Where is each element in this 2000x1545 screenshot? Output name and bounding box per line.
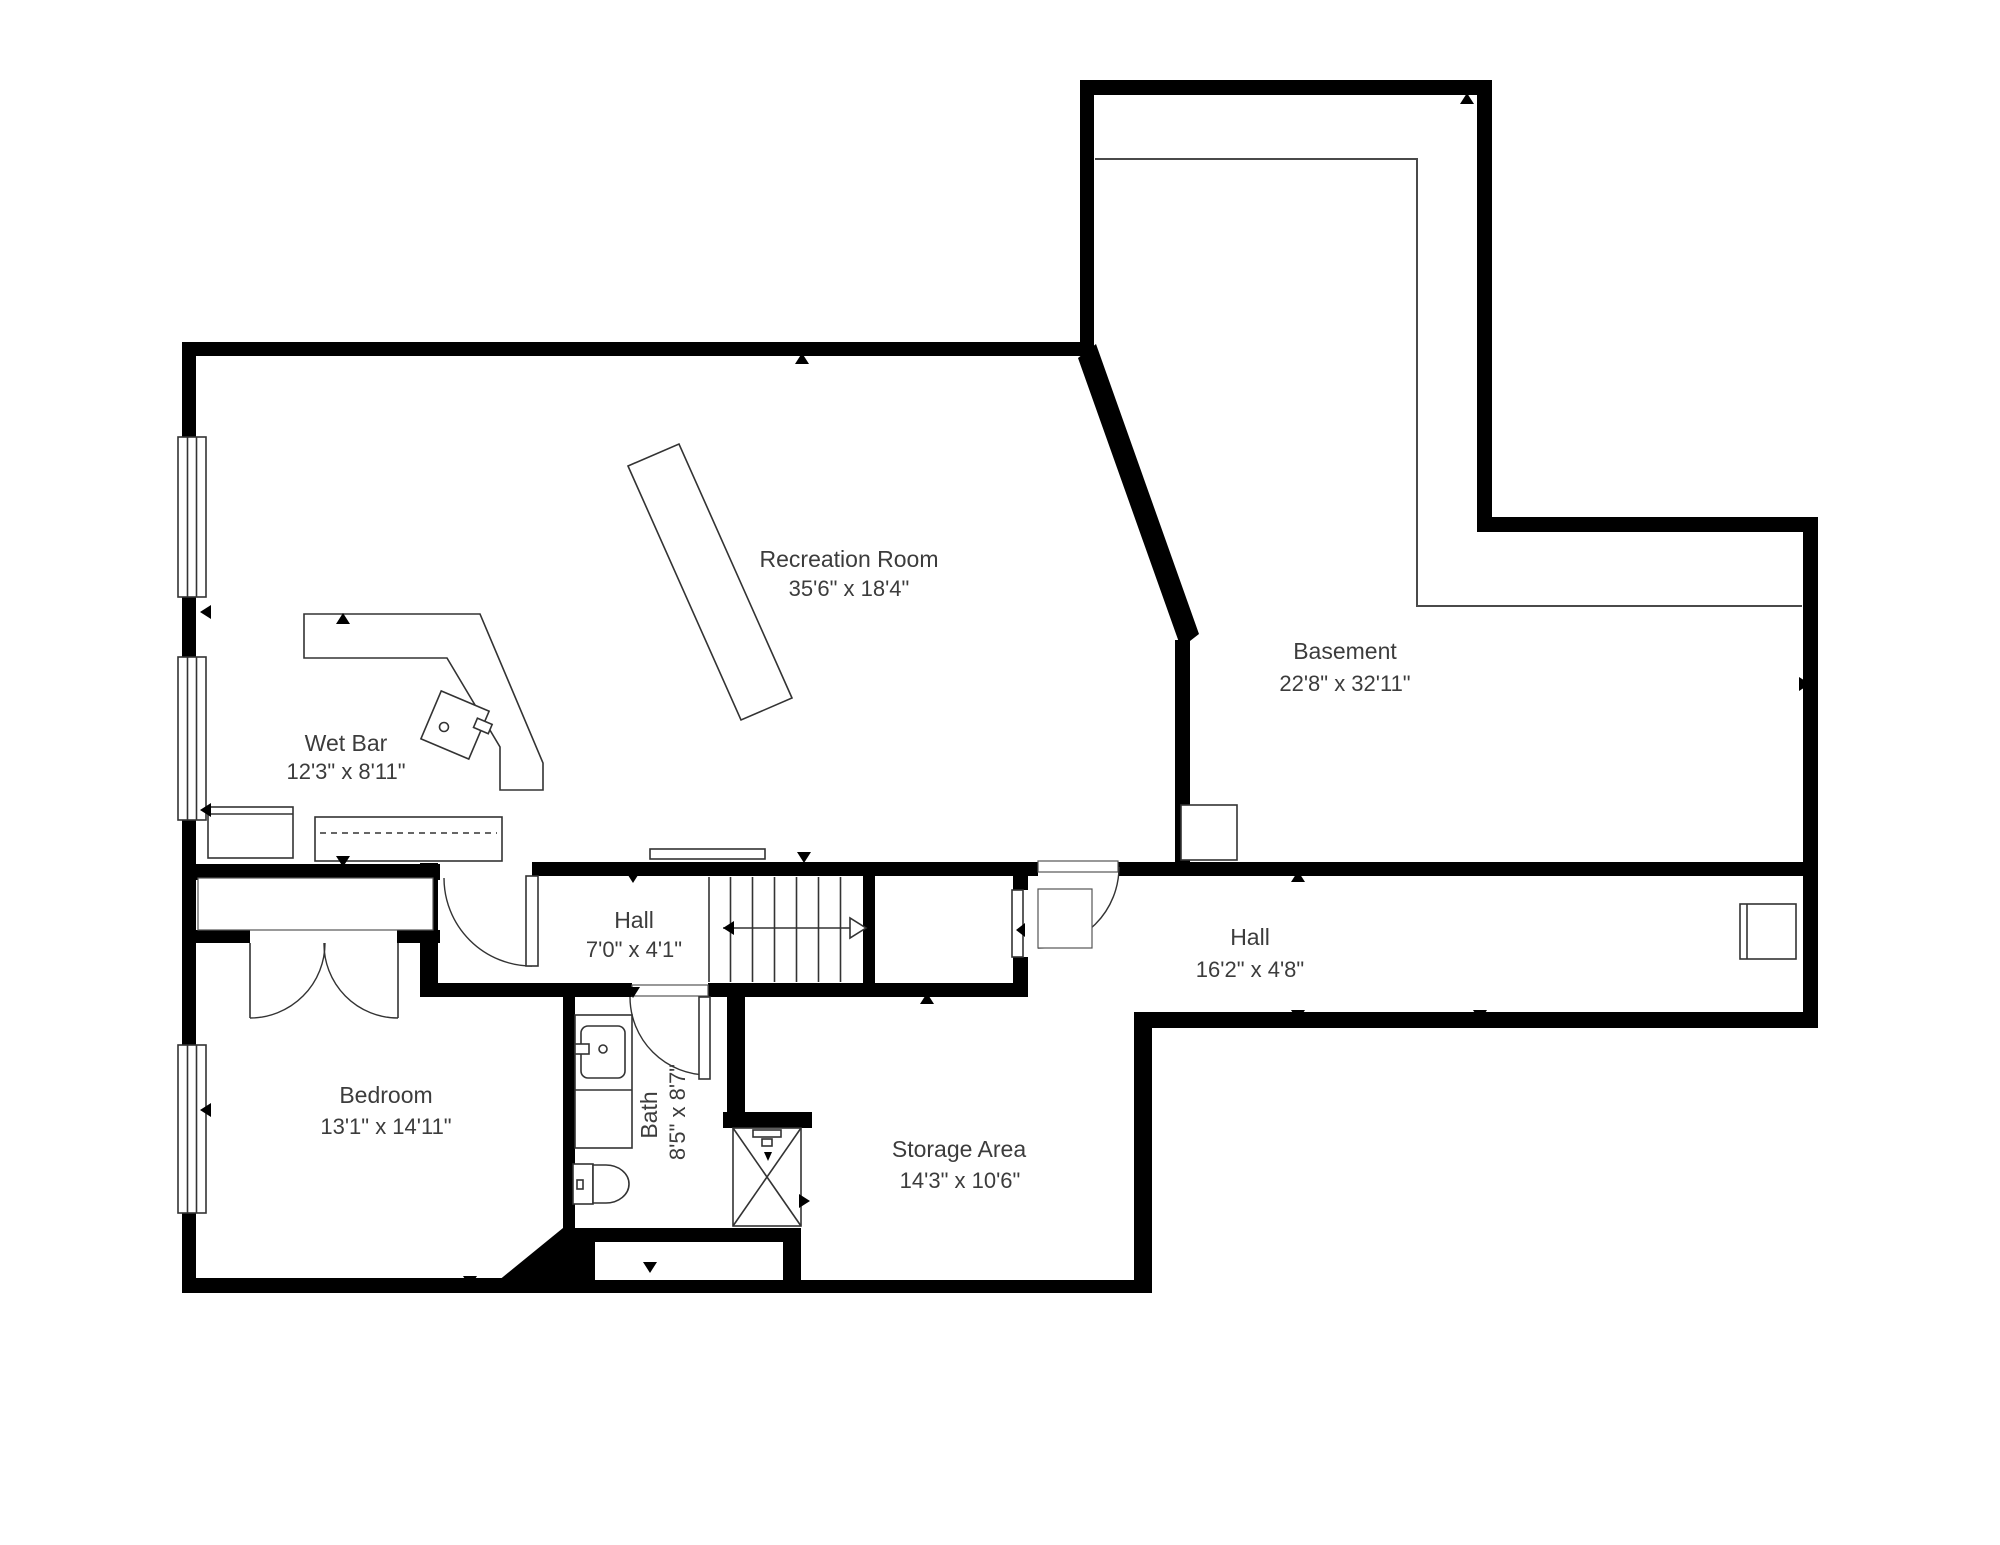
label-hall-small: Hall [614, 907, 654, 933]
label-wet-bar: Wet Bar [305, 730, 388, 756]
dims-basement: 22'8" x 32'11" [1279, 671, 1410, 696]
utility-box [1181, 805, 1237, 860]
dims-bedroom: 13'1" x 14'11" [320, 1114, 451, 1139]
bath-vanity [575, 1015, 632, 1148]
wall [182, 818, 196, 1046]
dims-storage: 14'3" x 10'6" [900, 1168, 1021, 1193]
wall [1477, 80, 1492, 532]
ceiling-break-line [1095, 159, 1802, 606]
wall [563, 1228, 801, 1242]
wall [1134, 1012, 1152, 1293]
label-hall-long: Hall [1230, 924, 1270, 950]
dims-hall-small: 7'0" x 4'1" [586, 937, 682, 962]
bedroom-hall-door [444, 876, 538, 966]
wall [182, 596, 196, 658]
wall [1013, 862, 1028, 890]
wall [1477, 517, 1818, 532]
marker-icon [799, 1194, 810, 1208]
fireplace-box [1740, 904, 1796, 959]
wall [1013, 957, 1028, 997]
wall [532, 862, 708, 876]
marker-icon [797, 852, 811, 863]
marker-icon [643, 1262, 657, 1273]
label-recreation-room: Recreation Room [760, 546, 939, 572]
window [178, 437, 206, 597]
wall [594, 1280, 1152, 1293]
floor-plan-drawing: Recreation Room 35'6" x 18'4" Basement 2… [0, 0, 2000, 1545]
wall [1118, 862, 1803, 876]
stairs-direction-start [723, 921, 734, 935]
wall [723, 1112, 812, 1128]
marker-icon [200, 605, 211, 619]
stairs [709, 877, 866, 982]
window [178, 657, 206, 820]
walls [182, 80, 1818, 1293]
marker-icon [626, 872, 640, 883]
closet-alcove [198, 878, 433, 930]
dims-hall-long: 16'2" x 4'8" [1196, 957, 1304, 982]
window [178, 1045, 206, 1213]
stair-railing [650, 849, 765, 859]
floor-plan: Recreation Room 35'6" x 18'4" Basement 2… [0, 0, 2000, 1545]
dims-wet-bar: 12'3" x 8'11" [286, 759, 405, 784]
wall [420, 983, 632, 997]
wall [1080, 80, 1492, 95]
toilet [573, 1164, 629, 1204]
lower-cabinet [315, 817, 502, 861]
label-bath: Bath [636, 1091, 662, 1138]
label-storage: Storage Area [892, 1136, 1026, 1162]
wall [397, 930, 440, 943]
closet-double-doors [250, 943, 398, 1018]
shower [733, 1128, 801, 1226]
dims-recreation-room: 35'6" x 18'4" [789, 576, 910, 601]
fixtures [208, 444, 1796, 1226]
wall [182, 342, 196, 438]
wall-diagonal [1078, 344, 1199, 648]
dims-bath: 8'5" x 8'7" [665, 1064, 690, 1160]
pool-table [628, 444, 792, 720]
wall [182, 342, 1093, 356]
wall [195, 930, 250, 943]
label-basement: Basement [1293, 638, 1397, 664]
wall [783, 1242, 801, 1284]
label-bedroom: Bedroom [339, 1082, 432, 1108]
shower-head [753, 1130, 781, 1137]
wall [1803, 517, 1818, 1028]
wall [1080, 80, 1094, 348]
